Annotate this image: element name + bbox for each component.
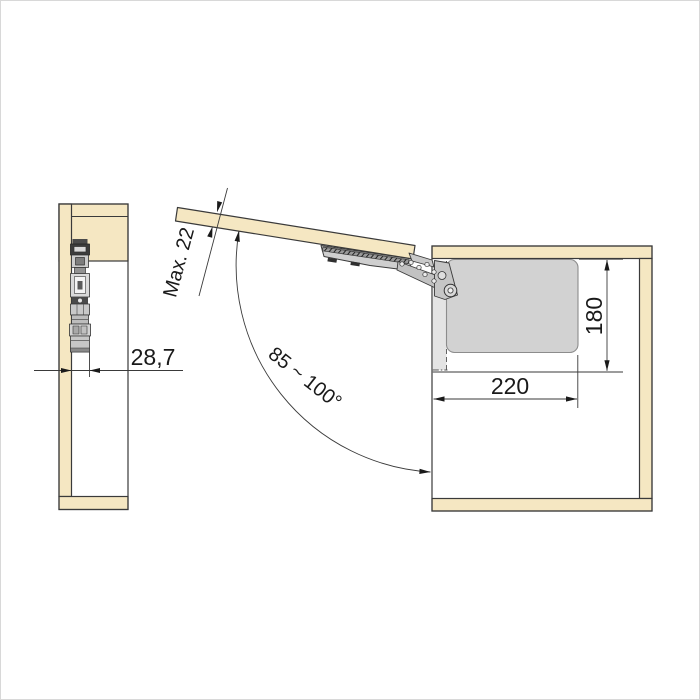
- arrowhead: [207, 227, 212, 238]
- arrowhead: [419, 469, 430, 474]
- opening-angle-label: 85 ~ 100°: [264, 343, 346, 414]
- flap-fitting-diagram: 28,7: [1, 1, 700, 700]
- arrowhead: [604, 260, 609, 271]
- dimension-28-7: 28,7: [34, 344, 183, 377]
- side-view-door-edge: [59, 204, 72, 497]
- cabinet-bottom-panel: [432, 499, 652, 512]
- arrowhead: [566, 396, 577, 401]
- height-dimension-label: 180: [581, 297, 607, 335]
- arrowhead: [434, 396, 445, 401]
- dimension-line: [199, 188, 228, 296]
- side-view-bottom-panel: [59, 497, 128, 510]
- dimension-max-22: Max. 22: [159, 188, 227, 300]
- mechanism-clearance-space: [447, 260, 579, 353]
- arrowhead: [90, 368, 101, 373]
- cabinet-side-panel: [640, 259, 653, 499]
- arrowhead: [604, 360, 609, 371]
- side-view: 28,7: [34, 204, 183, 510]
- cabinet-top-panel: [432, 246, 652, 259]
- dimension-220: 220: [434, 355, 578, 408]
- arrowhead: [235, 231, 240, 243]
- side-offset-dimension-label: 28,7: [131, 344, 176, 370]
- depth-dimension-label: 220: [491, 373, 529, 399]
- door-thickness-dimension-label: Max. 22: [159, 225, 199, 299]
- technical-drawing-canvas: 28,7: [0, 0, 700, 700]
- lift-mechanism-front-view: [70, 239, 91, 352]
- upper-link-arm: [409, 253, 434, 267]
- open-flap-view: Max. 22 85 ~ 100° 180 220: [159, 188, 652, 511]
